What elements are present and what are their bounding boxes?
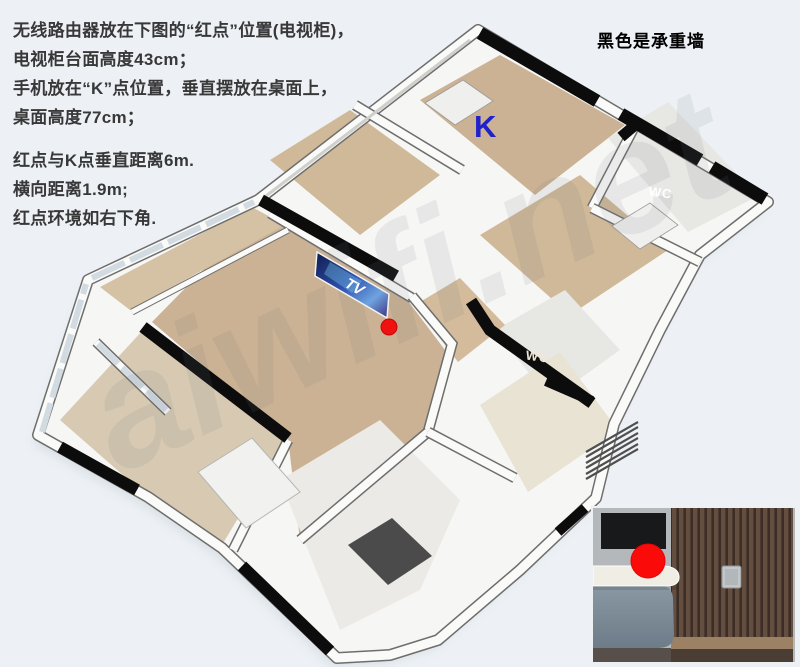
floorplan-page: 无线路由器放在下图的“红点”位置(电视柜)， 电视柜台面高度43cm； 手机放在… — [0, 0, 800, 667]
inset-baseboard — [671, 637, 793, 650]
instruction-line: 红点环境如右下角. — [13, 204, 473, 233]
inset-counter-shadow — [593, 586, 677, 590]
inset-switch-plate — [725, 569, 738, 585]
instruction-line: 红点与K点垂直距离6m. — [13, 146, 473, 175]
red-dot-marker — [381, 319, 397, 335]
inset-floor-dark — [671, 649, 793, 662]
notes-paragraph-2: 红点与K点垂直距离6m. 横向距离1.9m; 红点环境如右下角. — [13, 146, 473, 233]
instruction-line: 横向距离1.9m; — [13, 175, 473, 204]
instruction-line: 无线路由器放在下图的“红点”位置(电视柜)， — [13, 16, 473, 45]
inset-tv — [601, 513, 666, 549]
inset-cabinet — [593, 586, 674, 648]
inset-photo — [592, 507, 796, 663]
inset-floor-left — [593, 648, 671, 662]
instruction-line: 桌面高度77cm； — [13, 103, 473, 132]
instruction-notes: 无线路由器放在下图的“红点”位置(电视柜)， 电视柜台面高度43cm； 手机放在… — [13, 16, 473, 233]
instruction-line: 手机放在“K”点位置，垂直摆放在桌面上， — [13, 74, 473, 103]
k-point-label: K — [474, 109, 497, 144]
inset-red-dot — [631, 544, 665, 578]
notes-paragraph-1: 无线路由器放在下图的“红点”位置(电视柜)， 电视柜台面高度43cm； 手机放在… — [13, 16, 473, 132]
load-bearing-wall-legend: 黑色是承重墙 — [597, 27, 705, 52]
instruction-line: 电视柜台面高度43cm； — [13, 45, 473, 74]
